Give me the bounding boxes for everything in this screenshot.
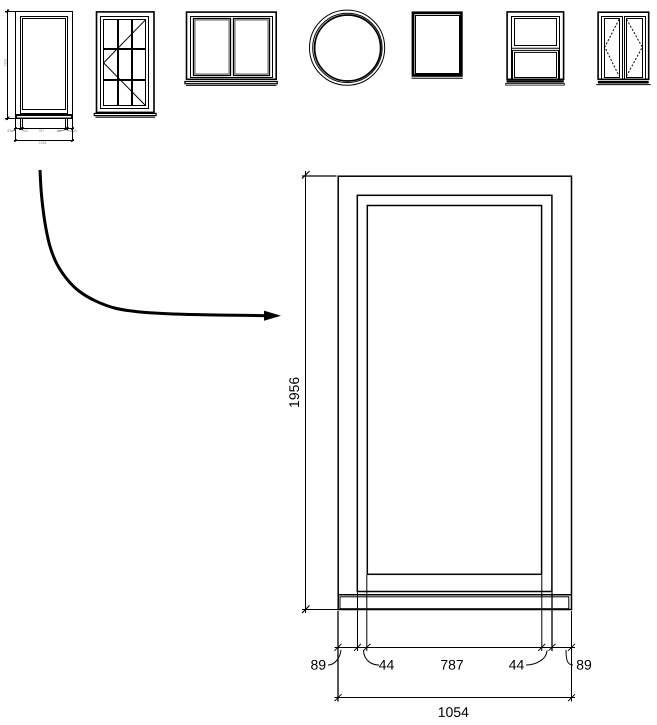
svg-text:44: 44 (57, 129, 61, 133)
svg-text:89: 89 (73, 129, 77, 133)
svg-text:1054: 1054 (39, 141, 47, 145)
svg-text:1956: 1956 (3, 59, 7, 67)
svg-text:787: 787 (38, 129, 44, 133)
svg-text:89: 89 (7, 129, 11, 133)
svg-text:44: 44 (24, 129, 28, 133)
